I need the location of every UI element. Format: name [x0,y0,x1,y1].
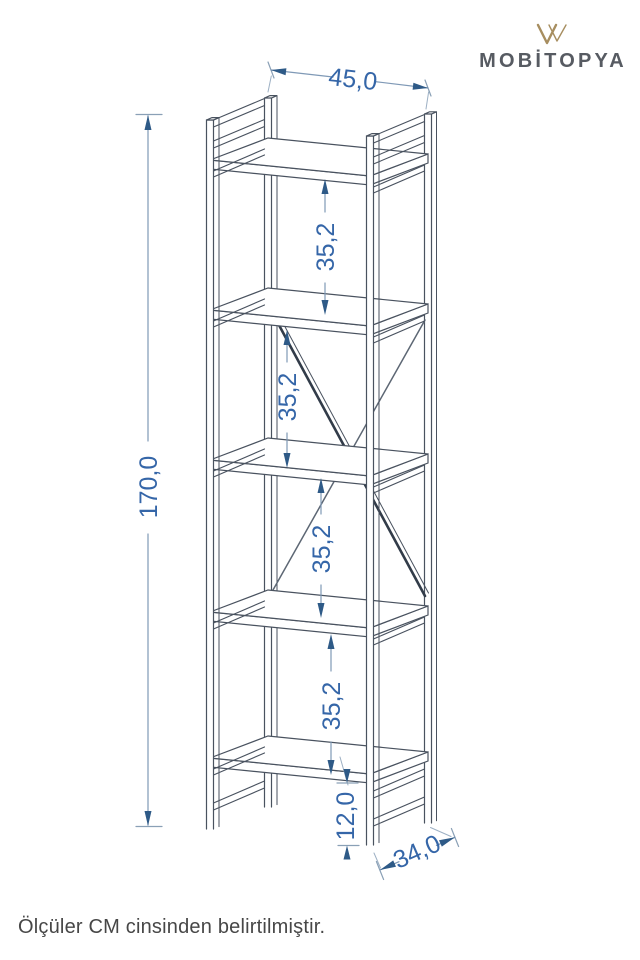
bottom-clearance-label: 12,0 [332,792,360,841]
brand-logo: MOBİTOPYA [478,22,628,73]
bay-2-label: 35,2 [274,373,302,422]
bay-4-label: 35,2 [318,682,346,731]
technical-drawing-page: 45,0 170,0 35,2 35,2 [0,0,640,960]
bookshelf-structure [207,96,437,845]
bay-1-label: 35,2 [312,223,340,272]
brand-monogram-icon [535,22,571,46]
bay-3-label: 35,2 [308,525,336,574]
shelf-unit-drawing: 45,0 170,0 35,2 35,2 [0,0,640,960]
depth-label: 34,0 [389,829,445,874]
dimension-width-top: 45,0 [268,62,431,109]
shelf-panel-5 [210,736,428,783]
dimension-total-height: 170,0 [135,115,163,827]
total-height-label: 170,0 [135,456,163,519]
units-note: Ölçüler CM cinsinden belirtilmiştir. [18,916,325,939]
brand-name: MOBİTOPYA [478,50,628,73]
width-top-label: 45,0 [327,63,379,96]
dimension-depth: 34,0 [374,828,459,880]
